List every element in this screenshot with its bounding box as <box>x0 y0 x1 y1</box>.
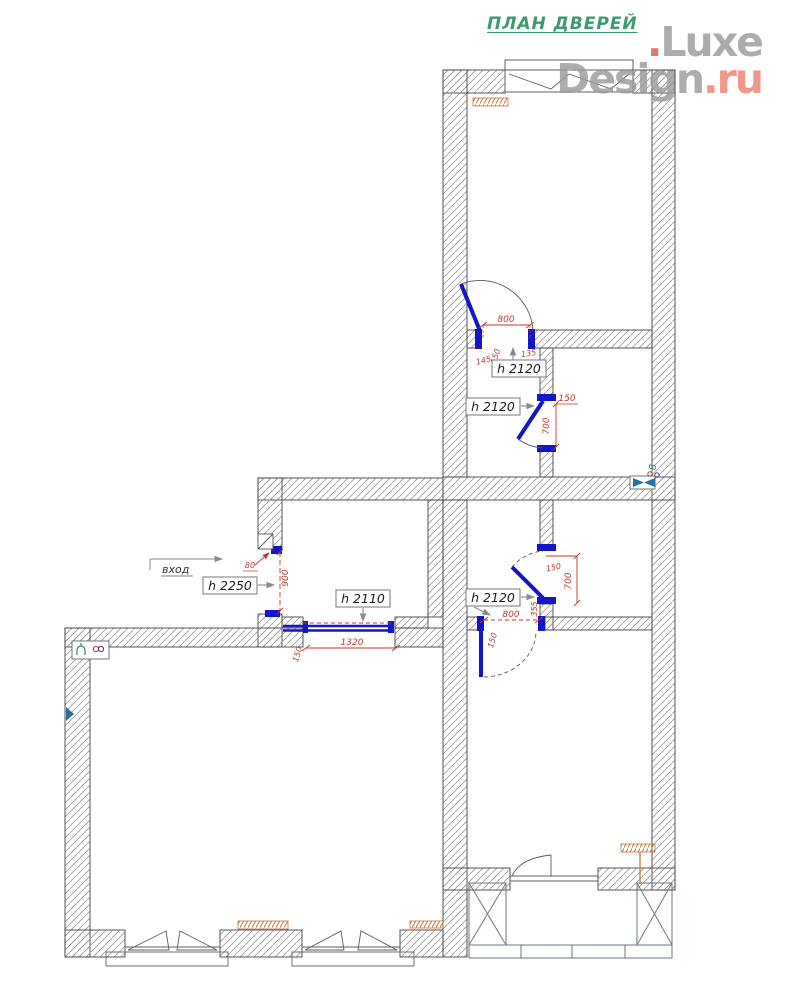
logo-domain: .ru <box>703 55 762 103</box>
door-swing-arc <box>512 855 551 876</box>
wall-bigroom-top-right <box>395 628 443 647</box>
dim-door-room-off: 150 <box>486 632 499 649</box>
dim-door-corridor-width: 700 <box>542 417 552 434</box>
door-jamb <box>475 329 482 349</box>
socket-icon <box>648 472 652 476</box>
dim-portal-off: 150 <box>291 646 304 663</box>
height-value: h 2250 <box>208 578 252 593</box>
wall-d-top <box>540 500 553 546</box>
dim-door-top-off-right: 135 <box>520 348 536 359</box>
door-jamb <box>528 329 535 349</box>
balcony <box>469 883 672 958</box>
wall-vestibule-right <box>428 500 443 617</box>
wall-block-bottom-left <box>443 868 510 890</box>
dim-door-hall-jamb: 355 <box>530 601 539 616</box>
height-label-door-corridor: h 2120 <box>466 398 534 415</box>
outlet-box <box>72 641 109 659</box>
logo-line2: Design.ru <box>556 61 762 98</box>
window-sill <box>292 952 414 966</box>
radiator-icon <box>410 921 443 928</box>
vent-number: 8 <box>648 464 659 470</box>
vent-symbol <box>630 476 655 489</box>
dim-door-room-width: 800 <box>502 610 519 620</box>
window-bottom-2 <box>292 931 414 966</box>
door-leaf <box>518 401 543 439</box>
height-value: h 2120 <box>497 361 541 376</box>
dim-entrance-off: 80 <box>245 561 255 570</box>
door-plan-page: 800 150 135 145 150 700 150 700 355 800 … <box>0 0 800 1000</box>
door-jamb <box>537 597 556 604</box>
wall-bigroom-bottom-2 <box>220 930 302 957</box>
height-label-entrance: h 2250 <box>203 577 274 594</box>
door-jamb <box>537 445 556 452</box>
dim-entrance-width: 900 <box>281 569 291 586</box>
balcony-door-window <box>510 855 598 881</box>
dim-door-hall-off: 150 <box>545 562 562 574</box>
wall-e-right <box>545 617 652 630</box>
wall-left-upper <box>443 70 467 477</box>
door-jamb <box>477 616 484 631</box>
luxedesign-logo: .Luxe Design.ru <box>556 24 762 98</box>
balcony-railing <box>469 945 672 958</box>
wall-vestibule-top <box>258 478 443 500</box>
door-swing-arc <box>512 551 543 567</box>
dim-door-top-width: 800 <box>497 315 514 325</box>
dim-door-corridor-off: 150 <box>558 394 575 404</box>
door-jamb <box>537 544 556 551</box>
walls <box>65 70 675 957</box>
wall-bigroom-bottom-3 <box>400 930 443 957</box>
wall-vest-bottom-strip-r <box>395 617 428 628</box>
height-label-door-hall: h 2120 <box>466 589 534 615</box>
entrance-text: вход <box>162 563 189 576</box>
door-entrance <box>258 534 282 617</box>
dim-door-top-off-left: 145 <box>475 354 492 366</box>
height-value: h 2110 <box>341 591 385 606</box>
dim-door-hall-width: 700 <box>564 572 574 589</box>
dim-portal-width: 1320 <box>341 638 364 648</box>
entrance-label: вход <box>150 559 222 576</box>
wall-a-right <box>533 330 652 348</box>
height-label-portal: h 2110 <box>336 590 390 621</box>
radiator-icon <box>621 844 655 852</box>
height-value: h 2120 <box>471 590 515 605</box>
wall-bigroom-left <box>65 628 90 957</box>
windows <box>106 60 633 966</box>
logo-name-bottom: Design <box>556 55 703 103</box>
radiator-icon <box>238 921 288 929</box>
height-value: h 2120 <box>471 399 515 414</box>
door-jamb <box>537 394 556 401</box>
wall-bigroom-bottom-1 <box>65 930 125 957</box>
radiator-icon <box>473 98 508 106</box>
floor-plan-drawing: 800 150 135 145 150 700 150 700 355 800 … <box>0 0 800 1000</box>
